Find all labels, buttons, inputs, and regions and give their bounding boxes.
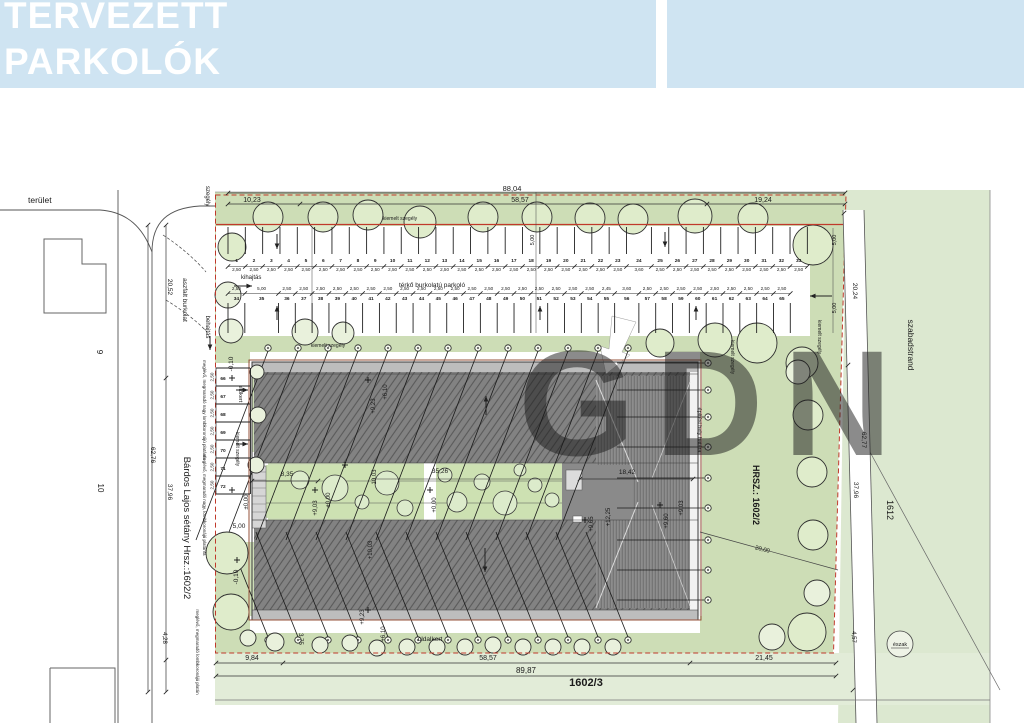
stall-number: 34 [234, 296, 240, 302]
tree [468, 202, 498, 232]
stall-number: 12 [425, 258, 431, 264]
stall-dim: 2,50 [676, 286, 685, 291]
stall-number: 20 [563, 258, 569, 264]
stall-number: 52 [553, 296, 559, 302]
stall-number: 71 [220, 466, 226, 472]
stall-dim: 2,50 [708, 267, 717, 272]
stall-number: 36 [284, 296, 290, 302]
tree [618, 204, 648, 234]
stall-number: 27 [692, 258, 698, 264]
label-dim_2052: 20,52 [166, 279, 173, 296]
lamp-dot [507, 347, 509, 349]
label-d500a: 5,00 [530, 235, 536, 246]
stall-number: 19 [546, 258, 552, 264]
label-d3796r: 37,96 [852, 482, 859, 499]
page-title-line1: TERVEZETT [4, 0, 228, 36]
label-p965: +9,65 [589, 516, 595, 532]
lamp-dot [477, 639, 479, 641]
stall-dim: 2,45 [602, 286, 611, 291]
stall-number: 28 [709, 258, 715, 264]
tree [798, 520, 828, 550]
label-meglevo3: meglévő, megmaradó lombkoronájú platán [195, 609, 200, 695]
label-d8987: 89,87 [516, 666, 537, 675]
stall-number: 59 [678, 296, 684, 302]
stall-dim: 2,50 [690, 267, 699, 272]
stall-number: 15 [477, 258, 483, 264]
label-d984: 9,84 [245, 655, 259, 662]
label-d457: 4,57 [850, 631, 856, 643]
lamp-dot [707, 569, 709, 571]
lamp-dot [327, 639, 329, 641]
stall-dim: 2,50 [552, 286, 561, 291]
stall-number: 40 [352, 296, 358, 302]
stall-number: 61 [712, 296, 718, 302]
lamp-dot [417, 347, 419, 349]
label-behajtas: behajtás [204, 316, 210, 339]
tree [213, 594, 249, 630]
neighbour-building-10 [50, 668, 115, 723]
lamp-dot [537, 639, 539, 641]
stall-number: 55 [604, 296, 610, 302]
label-kihajtas: kihajtás [241, 275, 261, 281]
stall-number: 10 [390, 258, 396, 264]
stall-number: 66 [220, 376, 226, 382]
stall-number: 17 [511, 258, 517, 264]
stall-dim: 2,50 [727, 286, 736, 291]
label-d2145: 21,45 [755, 655, 773, 662]
label-epitesi: építési hely határa [696, 408, 702, 454]
stall-dim: 2,50 [544, 267, 553, 272]
label-d3526: 35,26 [432, 468, 449, 475]
stall-dim: 2,50 [210, 372, 215, 381]
tree [759, 624, 785, 650]
stall-number: 9 [374, 258, 377, 264]
stall-dim: 2,50 [777, 286, 786, 291]
stall-dim: 2,50 [742, 267, 751, 272]
label-p610a: +6,10 [383, 384, 389, 400]
lamp-dot [297, 347, 299, 349]
stall-number: 33 [796, 258, 802, 264]
label-meglevo2: meglévő, megmaradó nagy, lombkoronájú pl… [202, 455, 207, 556]
neighbour-building-9 [44, 239, 106, 313]
stall-dim: 2,50 [501, 286, 510, 291]
stall-number: 57 [645, 296, 651, 302]
label-szegely_top: szegély [204, 186, 210, 206]
stall-dim: 2,50 [210, 444, 215, 453]
stall-dim: 2,50 [210, 480, 215, 489]
stall-dim: 2,50 [673, 267, 682, 272]
label-p903b: +9,03 [679, 500, 685, 516]
stall-number: 53 [570, 296, 576, 302]
stall-number: 64 [762, 296, 768, 302]
label-p923b: +9,23 [360, 609, 366, 625]
stall-dim: 2,50 [660, 286, 669, 291]
lamp-dot [707, 539, 709, 541]
stall-dim: 2,50 [467, 286, 476, 291]
stall-dim: 2,50 [440, 267, 449, 272]
stall-dim: 2,50 [561, 267, 570, 272]
stall-number: 26 [675, 258, 681, 264]
stall-dim: 2,50 [492, 267, 501, 272]
stall-number: 44 [419, 296, 425, 302]
label-oldalkert: oldalkert [418, 636, 443, 643]
stall-dim: 2,50 [596, 267, 605, 272]
stall-dim: 2,50 [388, 267, 397, 272]
stall-dim: 2,50 [210, 390, 215, 399]
stall-number: 50 [520, 296, 526, 302]
lamp-dot [447, 639, 449, 641]
stall-number: 60 [695, 296, 701, 302]
label-m010b: -0,10 [233, 569, 240, 584]
stall-dim: 2,50 [744, 286, 753, 291]
tree [353, 200, 383, 230]
stall-number: 69 [220, 430, 226, 436]
stall-number: 56 [624, 296, 630, 302]
stall-number: 65 [779, 296, 785, 302]
tree [206, 532, 248, 574]
stall-dim: 2,50 [210, 462, 215, 471]
tree [485, 637, 501, 653]
stall-number: 38 [318, 296, 324, 302]
stall-dim: 2,50 [585, 286, 594, 291]
label-d375: 3,75 [297, 633, 303, 645]
stall-dim: 2,50 [725, 267, 734, 272]
stall-number: 46 [452, 296, 458, 302]
label-m010a: -0,10 [228, 356, 235, 371]
stall-number: 24 [636, 258, 642, 264]
stall-dim: 2,50 [613, 267, 622, 272]
label-d1003: 10,03 [372, 469, 378, 485]
stall-number: 5 [305, 258, 308, 264]
label-d2024: 20,24 [851, 283, 858, 300]
stall-dim: 2,50 [282, 286, 291, 291]
stall-number: 29 [727, 258, 733, 264]
stall-number: 49 [503, 296, 509, 302]
site-plan-page: TERVEZETT PARKOLÓK 12,5022,5032,5042,505… [0, 0, 1024, 723]
stall-dim: 2,50 [535, 286, 544, 291]
tree [266, 633, 284, 651]
label-p923a: +9,23 [371, 398, 377, 414]
label-p903a: +9,03 [313, 500, 319, 516]
stall-dim: 2,50 [527, 267, 536, 272]
stall-dim: 2,50 [760, 267, 769, 272]
stall-dim: 2,50 [232, 286, 241, 291]
label-p1003: +10,03 [368, 540, 374, 559]
label-d500c: 5,00 [832, 303, 838, 314]
stall-dim: 2,50 [475, 267, 484, 272]
stall-dim: 2,50 [383, 286, 392, 291]
stall-dim: 2,50 [350, 286, 359, 291]
stall-dim: 2,50 [643, 286, 652, 291]
stall-dim: 2,50 [284, 267, 293, 272]
arrow-head [208, 344, 213, 350]
stall-number: 18 [529, 258, 535, 264]
label-dim_1924: 19,24 [754, 197, 772, 204]
stall-dim: 2,50 [301, 267, 310, 272]
stall-dim: 2,50 [319, 267, 328, 272]
label-haz9: 9 [95, 350, 104, 355]
stall-number: 11 [407, 258, 412, 264]
stall-number: 37 [301, 296, 307, 302]
stall-number: 25 [657, 258, 663, 264]
stall-dim: 2,50 [210, 426, 215, 435]
tree [404, 206, 436, 238]
stall-number: 30 [744, 258, 750, 264]
label-lot1612: 1612 [885, 500, 895, 520]
stall-number: 16 [494, 258, 500, 264]
tree [738, 203, 768, 233]
stall-dim: 2,50 [405, 267, 414, 272]
label-dim_3796l: 37,96 [166, 484, 173, 501]
stall-dim: 2,50 [579, 267, 588, 272]
tree [522, 202, 552, 232]
label-kiemelt_top: kiemelt szegély [383, 216, 418, 222]
courtyard-bush [545, 493, 559, 507]
tree [250, 407, 266, 423]
label-pm000a: ±0,00 [244, 494, 250, 510]
stall-dim: 2,50 [693, 286, 702, 291]
lamp-dot [477, 347, 479, 349]
label-d835: 8,35 [281, 471, 294, 478]
stall-dim: 2,50 [777, 267, 786, 272]
stall-number: 21 [580, 258, 586, 264]
stall-number: 47 [469, 296, 475, 302]
label-d5857b: 58,57 [479, 655, 497, 662]
lamp-dot [387, 347, 389, 349]
stall-number: 8 [357, 258, 360, 264]
stall-number: 13 [442, 258, 448, 264]
stall-dim: 2,50 [794, 267, 803, 272]
tree [240, 630, 256, 646]
lamp-dot [597, 639, 599, 641]
stall-number: 7 [339, 258, 342, 264]
label-lot16023: 1602/3 [569, 677, 603, 689]
tree [312, 637, 328, 653]
stall-number: 45 [436, 296, 442, 302]
label-kiemelt_r2: kiemelt szegély [816, 320, 822, 355]
stall-dim: 2,50 [333, 286, 342, 291]
stall-number: 63 [746, 296, 752, 302]
label-d500entry: 5,00 [233, 523, 246, 530]
courtyard-bush [474, 474, 490, 490]
lamp-dot [707, 599, 709, 601]
lamp-dot [267, 347, 269, 349]
courtyard-bush [397, 500, 413, 516]
tree [575, 203, 605, 233]
stall-number: 70 [220, 448, 226, 454]
lamp-dot [567, 639, 569, 641]
label-haz10: 10 [96, 484, 105, 493]
site-plan-drawing: TERVEZETT PARKOLÓK 12,5022,5032,5042,505… [0, 0, 1024, 723]
label-terulet: terület [28, 195, 52, 205]
stall-dim: 2,50 [250, 267, 259, 272]
label-p1225: +12,25 [606, 507, 612, 526]
stall-dim: 2,50 [316, 286, 325, 291]
stall-number: 3 [270, 258, 273, 264]
label-bardos: Bárdos Lajos sétány Hrsz.:1602/2 [181, 457, 192, 600]
lamp-dot [707, 507, 709, 509]
stall-number: 31 [761, 258, 767, 264]
lamp-dot [387, 639, 389, 641]
stall-dim: 2,50 [656, 267, 665, 272]
label-dim_1023: 10,23 [243, 197, 261, 204]
label-elokert: előkert [237, 386, 243, 403]
roof-structure-small [573, 516, 582, 522]
lamp-dot [507, 639, 509, 641]
label-p000: +0,00 [432, 497, 438, 513]
label-meglevo1: meglévő, megmaradó nagy lombkoronájú pla… [202, 360, 207, 461]
stall-number: 62 [729, 296, 735, 302]
label-d500b: 5,00 [832, 235, 838, 246]
label-terko: térkő burkolatú parkoló [399, 282, 466, 289]
label-dim_428: 4,28 [161, 632, 167, 644]
stall-dim: 2,50 [484, 286, 493, 291]
label-hrsz: HRSZ.: 1602/2 [751, 465, 761, 525]
tree [253, 202, 283, 232]
stall-number: 54 [587, 296, 593, 302]
stall-number: 68 [220, 412, 226, 418]
stall-dim: 5,00 [257, 286, 266, 291]
stall-dim: 2,50 [299, 286, 308, 291]
stall-number: 22 [598, 258, 604, 264]
label-eszak: észak [893, 642, 908, 648]
stall-number: 48 [486, 296, 492, 302]
tree [219, 319, 243, 343]
lamp-dot [627, 639, 629, 641]
lamp-dot [357, 347, 359, 349]
stall-number: 23 [615, 258, 621, 264]
label-dim_8804: 88,04 [503, 184, 522, 193]
stall-dim: 2,50 [518, 286, 527, 291]
plan-content: 12,5022,5032,5042,5052,5062,5072,5082,50… [0, 184, 1000, 723]
tree [218, 233, 246, 261]
courtyard-bush [447, 492, 467, 512]
label-dim_5857t: 58,57 [511, 197, 529, 204]
stall-number: 41 [368, 296, 374, 302]
watermark: GDN [518, 319, 911, 487]
stall-dim: 2,50 [457, 267, 466, 272]
label-szabadstrand: szabadstrand [906, 319, 916, 370]
label-dim_6276: 62,76 [149, 447, 156, 464]
stall-number: 1 [235, 258, 238, 264]
tree [250, 365, 264, 379]
stall-dim: 2,50 [367, 286, 376, 291]
stall-dim: 2,50 [761, 286, 770, 291]
label-p610b: +6,10 [381, 626, 387, 642]
stall-dim: 2,50 [509, 267, 518, 272]
stall-dim: 2,50 [336, 267, 345, 272]
tree [342, 635, 358, 651]
label-d6277: 62,77 [860, 432, 867, 449]
stall-dim: 2,50 [232, 267, 241, 272]
label-d1842: 18,42 [619, 469, 636, 476]
stall-dim: 2,50 [267, 267, 276, 272]
stall-dim: 3,60 [634, 267, 643, 272]
stall-number: 72 [220, 484, 226, 490]
stall-number: 67 [220, 394, 226, 400]
road-curve [152, 206, 215, 252]
stall-dim: 2,50 [371, 267, 380, 272]
courtyard-bush [375, 471, 399, 495]
stall-number: 14 [459, 258, 465, 264]
title-header: TERVEZETT PARKOLÓK [0, 0, 1024, 88]
tree [308, 202, 338, 232]
tree [788, 613, 826, 651]
stall-number: 32 [779, 258, 785, 264]
stall-number: 6 [322, 258, 325, 264]
label-kiemelt_mid: kiemelt szegély [311, 343, 346, 349]
stall-number: 42 [385, 296, 391, 302]
label-aszfalt: aszfalt burkolat [181, 278, 188, 322]
page-title-line2: PARKOLÓK [4, 40, 221, 82]
stall-number: 51 [537, 296, 543, 302]
label-pm000b: ±0,00 [326, 492, 332, 508]
stall-number: 35 [259, 296, 265, 302]
label-kiemelt_r1: kiemelt szegély [729, 340, 735, 375]
stall-dim: 3,60 [622, 286, 631, 291]
stall-number: 58 [661, 296, 667, 302]
tree [804, 580, 830, 606]
road-curve2 [100, 210, 152, 252]
stall-number: 39 [335, 296, 341, 302]
stall-dim: 2,50 [210, 408, 215, 417]
header-divider [656, 0, 667, 88]
stall-number: 2 [253, 258, 256, 264]
lamp-dot [447, 347, 449, 349]
stall-dim: 2,50 [710, 286, 719, 291]
stall-dim: 2,50 [353, 267, 362, 272]
stall-dim: 2,50 [423, 267, 432, 272]
entry-path-dashed [163, 235, 206, 272]
tree [292, 319, 318, 345]
stall-number: 43 [402, 296, 408, 302]
tree [332, 322, 354, 344]
stall-number: 4 [287, 258, 290, 264]
label-kiemelt_left: kiemelt szegély [234, 432, 240, 467]
stall-dim: 2,50 [568, 286, 577, 291]
label-p960: +9,60 [664, 513, 670, 529]
